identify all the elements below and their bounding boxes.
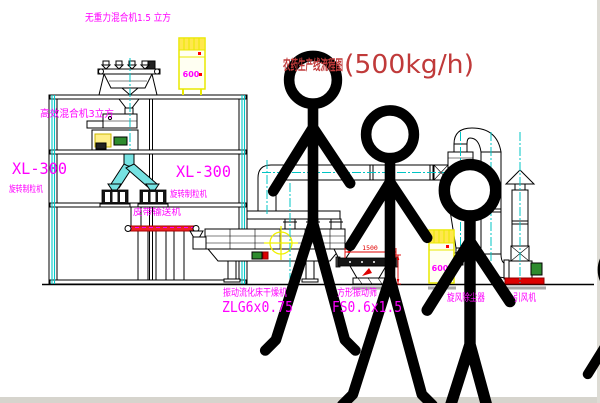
zero-gravity-mixer-machine: [98, 61, 160, 95]
label-cyclone: 旋风除尘器: [447, 291, 485, 304]
cabinet-1-panel-text: 600: [183, 70, 200, 79]
label-granulator-right-model: XL-300: [176, 162, 231, 181]
worker-figure-floor2: [342, 110, 432, 403]
dim-sieve-length: 1500: [362, 244, 378, 252]
granulator-right-machine: [138, 184, 168, 207]
label-belt-conveyor: 皮带输送机: [133, 206, 181, 218]
page-title: 农药生产线流程图: [282, 57, 343, 74]
window-edge-bottom: [0, 397, 600, 403]
induced-draft-fan-machine: [504, 170, 544, 284]
label-high-efficiency-mixer: 高效混合机3立方: [40, 107, 114, 120]
page-title-capacity: (500kg/h): [344, 50, 474, 80]
granulator-left-machine: [100, 184, 130, 207]
label-granulator-left-model: XL-300: [12, 159, 67, 178]
y-feed-duct: [111, 154, 157, 188]
label-granulator-left-name: 旋转制粒机: [9, 183, 43, 195]
label-zero-gravity-mixer: 无重力混合机1.5 立方: [85, 11, 171, 24]
label-granulator-right-name: 旋转制粒机: [170, 188, 207, 200]
diagram-canvas: 600: [0, 0, 600, 403]
control-cabinet-1: 600: [179, 38, 205, 95]
label-fan: 引风机: [513, 291, 536, 304]
label-dryer-model: ZLG6x0.75: [222, 298, 293, 316]
flow-diagram: 600: [0, 0, 600, 403]
high-efficiency-mixer-machine: [87, 99, 139, 150]
belt-conveyor-machine: [125, 226, 203, 281]
label-sieve-model: FS0.6x1.5: [332, 298, 402, 316]
